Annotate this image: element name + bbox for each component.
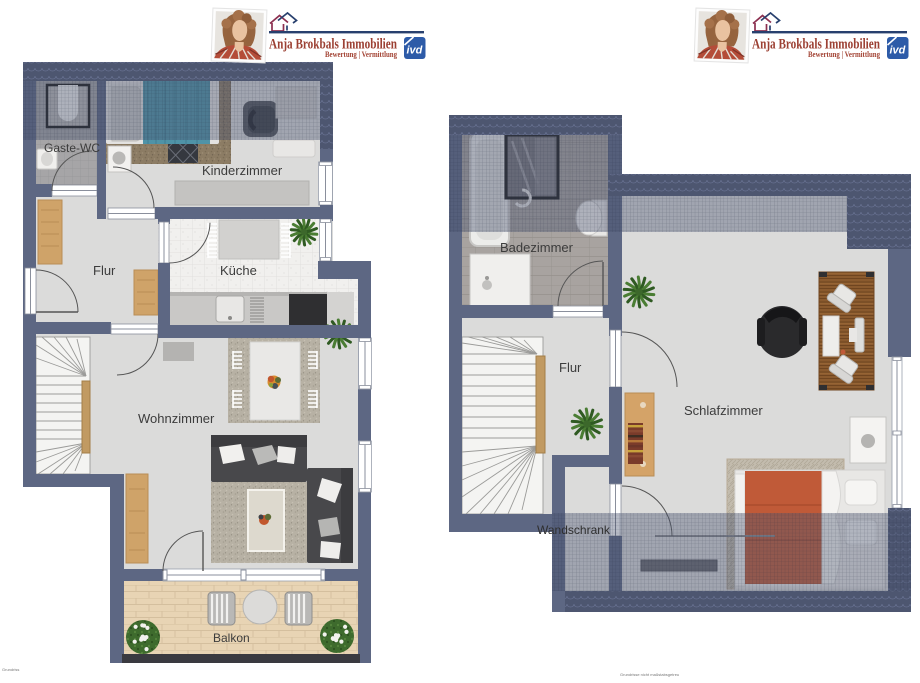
- svg-text:Gaste-WC: Gaste-WC: [44, 141, 100, 155]
- svg-text:Grundrisse nicht maßstabsgetre: Grundrisse nicht maßstabsgetreu: [620, 672, 679, 677]
- svg-text:Flur: Flur: [93, 263, 116, 278]
- svg-text:Flur: Flur: [559, 360, 582, 375]
- svg-text:Badezimmer: Badezimmer: [500, 240, 574, 255]
- svg-text:Küche: Küche: [220, 263, 257, 278]
- svg-text:Balkon: Balkon: [213, 631, 250, 645]
- svg-text:Wandschrank: Wandschrank: [537, 523, 611, 537]
- svg-text:ivd: ivd: [407, 45, 423, 57]
- svg-text:Schlafzimmer: Schlafzimmer: [684, 403, 763, 418]
- svg-text:Bewertung | Vermittlung: Bewertung | Vermittlung: [808, 49, 881, 59]
- svg-text:Bewertung | Vermittlung: Bewertung | Vermittlung: [325, 49, 398, 59]
- svg-text:ivd: ivd: [890, 45, 906, 57]
- svg-text:Wohnzimmer: Wohnzimmer: [138, 411, 215, 426]
- svg-text:Kinderzimmer: Kinderzimmer: [202, 163, 283, 178]
- svg-text:Grundriss: Grundriss: [2, 667, 19, 672]
